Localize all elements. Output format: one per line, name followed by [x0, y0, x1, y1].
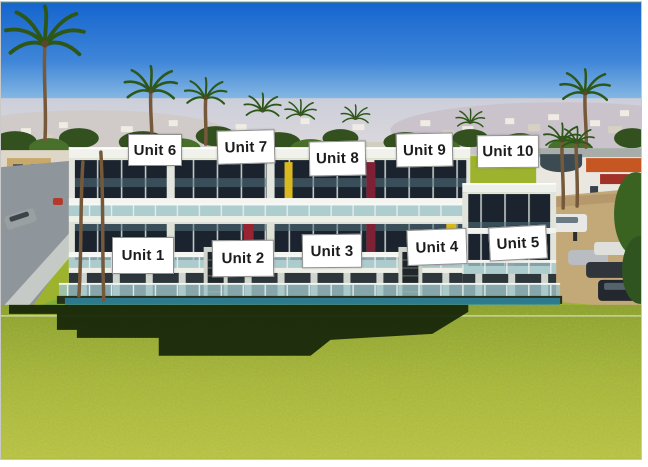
- unit-label-unit-7[interactable]: Unit 7: [217, 129, 276, 165]
- unit-label-unit-6[interactable]: Unit 6: [128, 134, 182, 166]
- unit-label-unit-2[interactable]: Unit 2: [212, 240, 274, 278]
- unit-label-unit-5[interactable]: Unit 5: [488, 225, 548, 262]
- slide-canvas: { "image": { "kind": "aerial-photo-with-…: [0, 0, 648, 467]
- unit-label-unit-1[interactable]: Unit 1: [112, 237, 174, 274]
- unit-label-unit-3[interactable]: Unit 3: [302, 234, 362, 269]
- unit-label-unit-4[interactable]: Unit 4: [406, 228, 467, 266]
- unit-label-unit-9[interactable]: Unit 9: [396, 133, 454, 168]
- unit-label-unit-10[interactable]: Unit 10: [477, 135, 539, 169]
- unit-label-unit-8[interactable]: Unit 8: [309, 141, 367, 177]
